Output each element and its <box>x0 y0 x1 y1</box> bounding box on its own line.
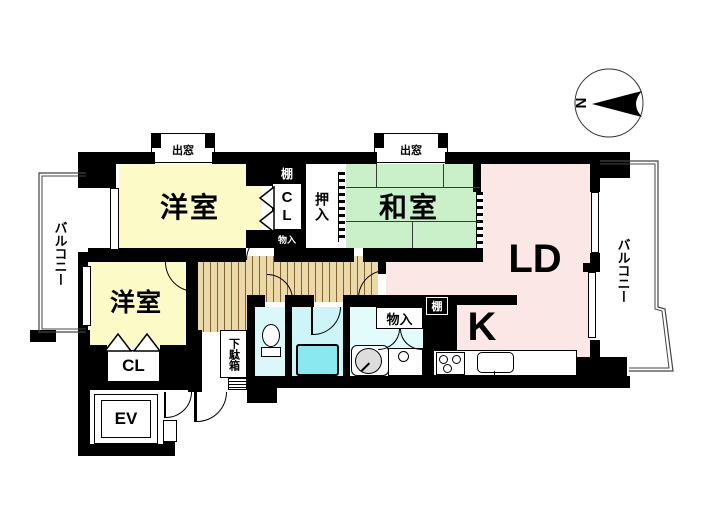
elevator-label: EV <box>101 400 151 438</box>
outside-step <box>163 420 177 442</box>
door-leaf <box>311 307 313 335</box>
wall <box>274 248 354 262</box>
storage-top: 物入 <box>272 230 302 248</box>
entrance-step <box>228 378 247 390</box>
room-label-western-2: 洋室 <box>86 286 186 316</box>
bay-window-right-label: 出窓 <box>374 140 448 160</box>
tatami-line <box>443 164 444 187</box>
wall <box>78 444 174 456</box>
stove-burner <box>439 355 448 364</box>
wall <box>240 376 630 388</box>
storage-washroom-label: 物入 <box>376 307 423 329</box>
compass-arrow-icon <box>592 91 642 117</box>
stove-burner <box>452 355 461 364</box>
room-label-western-1: 洋室 <box>125 190 255 222</box>
wall <box>292 295 314 307</box>
wall <box>343 295 350 377</box>
room-label-japanese: 和室 <box>344 190 474 222</box>
wall <box>590 253 600 263</box>
wash-basin <box>355 348 382 374</box>
room-label-ld: LD <box>495 238 575 280</box>
hallway-floor-lower <box>196 302 250 332</box>
sink-faucet <box>494 371 495 378</box>
compass-north-label: N <box>572 94 590 112</box>
window <box>588 272 596 338</box>
stove-burner <box>443 364 452 373</box>
wall <box>163 442 175 456</box>
kitchen-sink <box>477 352 514 373</box>
floor-plan: 棚 CL 物入 押入 CL EV 下駄箱 物入 棚 <box>0 0 705 525</box>
door-arc-common <box>166 392 192 418</box>
wall <box>590 152 600 192</box>
wall <box>252 295 265 307</box>
toilet-tank <box>261 347 281 357</box>
closet-top-label: CL <box>274 185 300 228</box>
wall <box>363 248 473 262</box>
wall <box>88 248 246 262</box>
tatami-line <box>376 164 377 187</box>
wall <box>445 152 602 164</box>
toilet-bowl <box>262 324 280 347</box>
balcony-left-label: バルコニー <box>48 198 72 308</box>
door-leaf <box>164 392 166 418</box>
shoe-cabinet-label: 下駄箱 <box>222 332 245 376</box>
window <box>591 192 599 253</box>
wall <box>247 295 255 377</box>
bay-window-left-label: 出窓 <box>151 140 215 160</box>
washing-machine-drain <box>398 351 409 362</box>
shelf-kitchen: 棚 <box>426 297 448 315</box>
door-leaf <box>194 392 197 422</box>
wall <box>160 345 202 390</box>
wall <box>115 152 155 164</box>
shelf-top: 棚 <box>272 164 302 183</box>
door-arc-entrance <box>197 392 227 422</box>
bathtub <box>296 344 339 376</box>
wall <box>78 152 116 188</box>
wall <box>212 152 377 164</box>
wall <box>285 295 292 377</box>
wall <box>246 164 274 186</box>
wall <box>30 330 56 342</box>
wall <box>457 295 517 305</box>
wall <box>88 345 107 390</box>
window <box>110 188 119 250</box>
oshiire-label: 押入 <box>306 170 338 244</box>
wall <box>473 248 483 262</box>
balcony-right-label: バルコニー <box>611 215 635 325</box>
room-label-kitchen: K <box>462 306 502 348</box>
wall <box>583 263 600 272</box>
closet-bottom-label: CL <box>107 350 160 382</box>
